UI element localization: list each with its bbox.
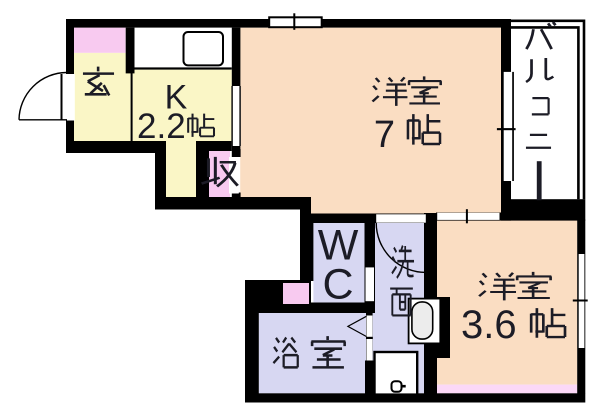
svg-text:7: 7 (374, 114, 395, 156)
svg-text:C: C (322, 261, 353, 309)
svg-text:2.2: 2.2 (137, 107, 186, 146)
svg-text:3.6: 3.6 (461, 303, 517, 347)
